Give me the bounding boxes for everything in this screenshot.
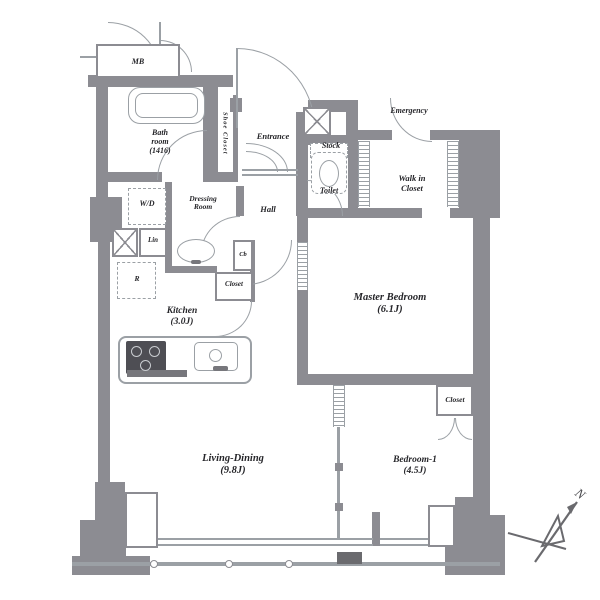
bedroom1-label: Bedroom-1 (4.5J) — [393, 455, 437, 476]
bathroom-label: Bath room (1416) — [149, 129, 170, 156]
dressing-room-label-line: Room — [189, 203, 217, 211]
kitchen-label-line: Kitchen — [167, 306, 198, 317]
bedroom1-label-line: (4.5J) — [393, 466, 437, 477]
north-arrow-flag — [542, 516, 564, 546]
balcony-partition — [337, 552, 362, 564]
wall — [236, 186, 244, 216]
bathtub-inner — [135, 93, 198, 118]
pipe-space-box — [303, 107, 331, 136]
kitchen-closet-door-arc — [215, 301, 252, 337]
wall — [297, 290, 308, 374]
walk-in-closet-label: Walk in Closet — [398, 174, 425, 193]
column — [459, 130, 500, 218]
walk-in-closet-label-line: Closet — [398, 184, 425, 194]
linen-label: Lin — [148, 237, 158, 245]
master-bedroom-label-line: Master Bedroom — [354, 292, 427, 304]
living-dining-label: Living-Dining (9.8J) — [202, 453, 264, 477]
dressing-room-label: Dressing Room — [189, 195, 217, 212]
wall — [297, 218, 308, 242]
emergency-label: Emergency — [390, 107, 427, 116]
wic-shelf — [447, 141, 459, 207]
hall-door-arc — [247, 240, 292, 285]
partition-notch — [335, 463, 343, 471]
rail-post — [225, 560, 233, 568]
wall — [165, 266, 217, 273]
partition-line — [337, 511, 340, 540]
bedroom1-sliding-door — [333, 385, 345, 427]
wall — [96, 87, 108, 199]
hall-label: Hall — [260, 205, 276, 215]
entrance-label: Entrance — [257, 132, 290, 142]
master-sliding-door — [297, 242, 308, 290]
master-bedroom-label: Master Bedroom (6.1J) — [354, 292, 427, 316]
window-line — [158, 538, 373, 540]
bathroom-label-line: (1416) — [149, 147, 170, 156]
stove-burner — [131, 346, 142, 357]
bedroom1-closet-label: Closet — [445, 396, 464, 404]
kitchen-label-line: (3.0J) — [167, 317, 198, 328]
stove-burner — [149, 346, 160, 357]
north-label: N — [571, 484, 589, 503]
living-dining-label-line: (9.8J) — [202, 465, 264, 477]
partition-line — [337, 471, 340, 503]
stock-label: Stock — [322, 142, 340, 151]
emergency-door-arc — [390, 98, 432, 142]
wall — [450, 208, 473, 218]
washer-dryer-label: W/D — [139, 200, 154, 209]
closet-folding-door — [455, 418, 472, 440]
toilet-label: Toilet — [320, 187, 338, 196]
side-window — [125, 492, 158, 548]
column — [455, 497, 490, 519]
toilet-bowl — [319, 160, 339, 187]
north-arrow-head — [567, 502, 577, 514]
wall — [473, 218, 490, 518]
living-dining-label-line: Living-Dining — [202, 453, 264, 465]
floor-plan: MB Bath room (1416) Shoe Closet Entrance… — [0, 0, 600, 600]
rail-post — [150, 560, 158, 568]
sink-faucet — [209, 349, 222, 362]
wall — [297, 374, 476, 385]
rail-post — [285, 560, 293, 568]
sink-drain — [213, 366, 228, 371]
wall — [203, 172, 238, 182]
wic-shelf — [358, 141, 370, 207]
cabinet-label: Cb — [239, 251, 247, 258]
partition-line — [337, 427, 340, 463]
wall — [357, 130, 392, 140]
wall — [100, 172, 162, 182]
entrance-step — [242, 174, 298, 176]
wall — [372, 512, 380, 546]
side-window — [428, 505, 455, 547]
mb-label: MB — [132, 58, 144, 67]
north-arrow-crossbar — [508, 533, 566, 549]
bedroom1-label-line: Bedroom-1 — [393, 455, 437, 466]
window-line — [158, 544, 373, 546]
wall — [348, 135, 358, 216]
stove-grill — [127, 370, 187, 377]
partition-notch — [335, 503, 343, 511]
pipe-space-box — [112, 228, 138, 257]
shoe-closet-label: Shoe Closet — [221, 112, 228, 155]
kitchen-closet-label: Closet — [225, 281, 243, 289]
kitchen-label: Kitchen (3.0J) — [167, 306, 198, 327]
stove-burner — [140, 360, 151, 371]
refrigerator-label: R — [134, 275, 139, 283]
master-bedroom-label-line: (6.1J) — [354, 304, 427, 316]
closet-folding-door — [438, 418, 455, 440]
washbasin-faucet — [191, 260, 201, 264]
compass: N — [492, 462, 592, 577]
